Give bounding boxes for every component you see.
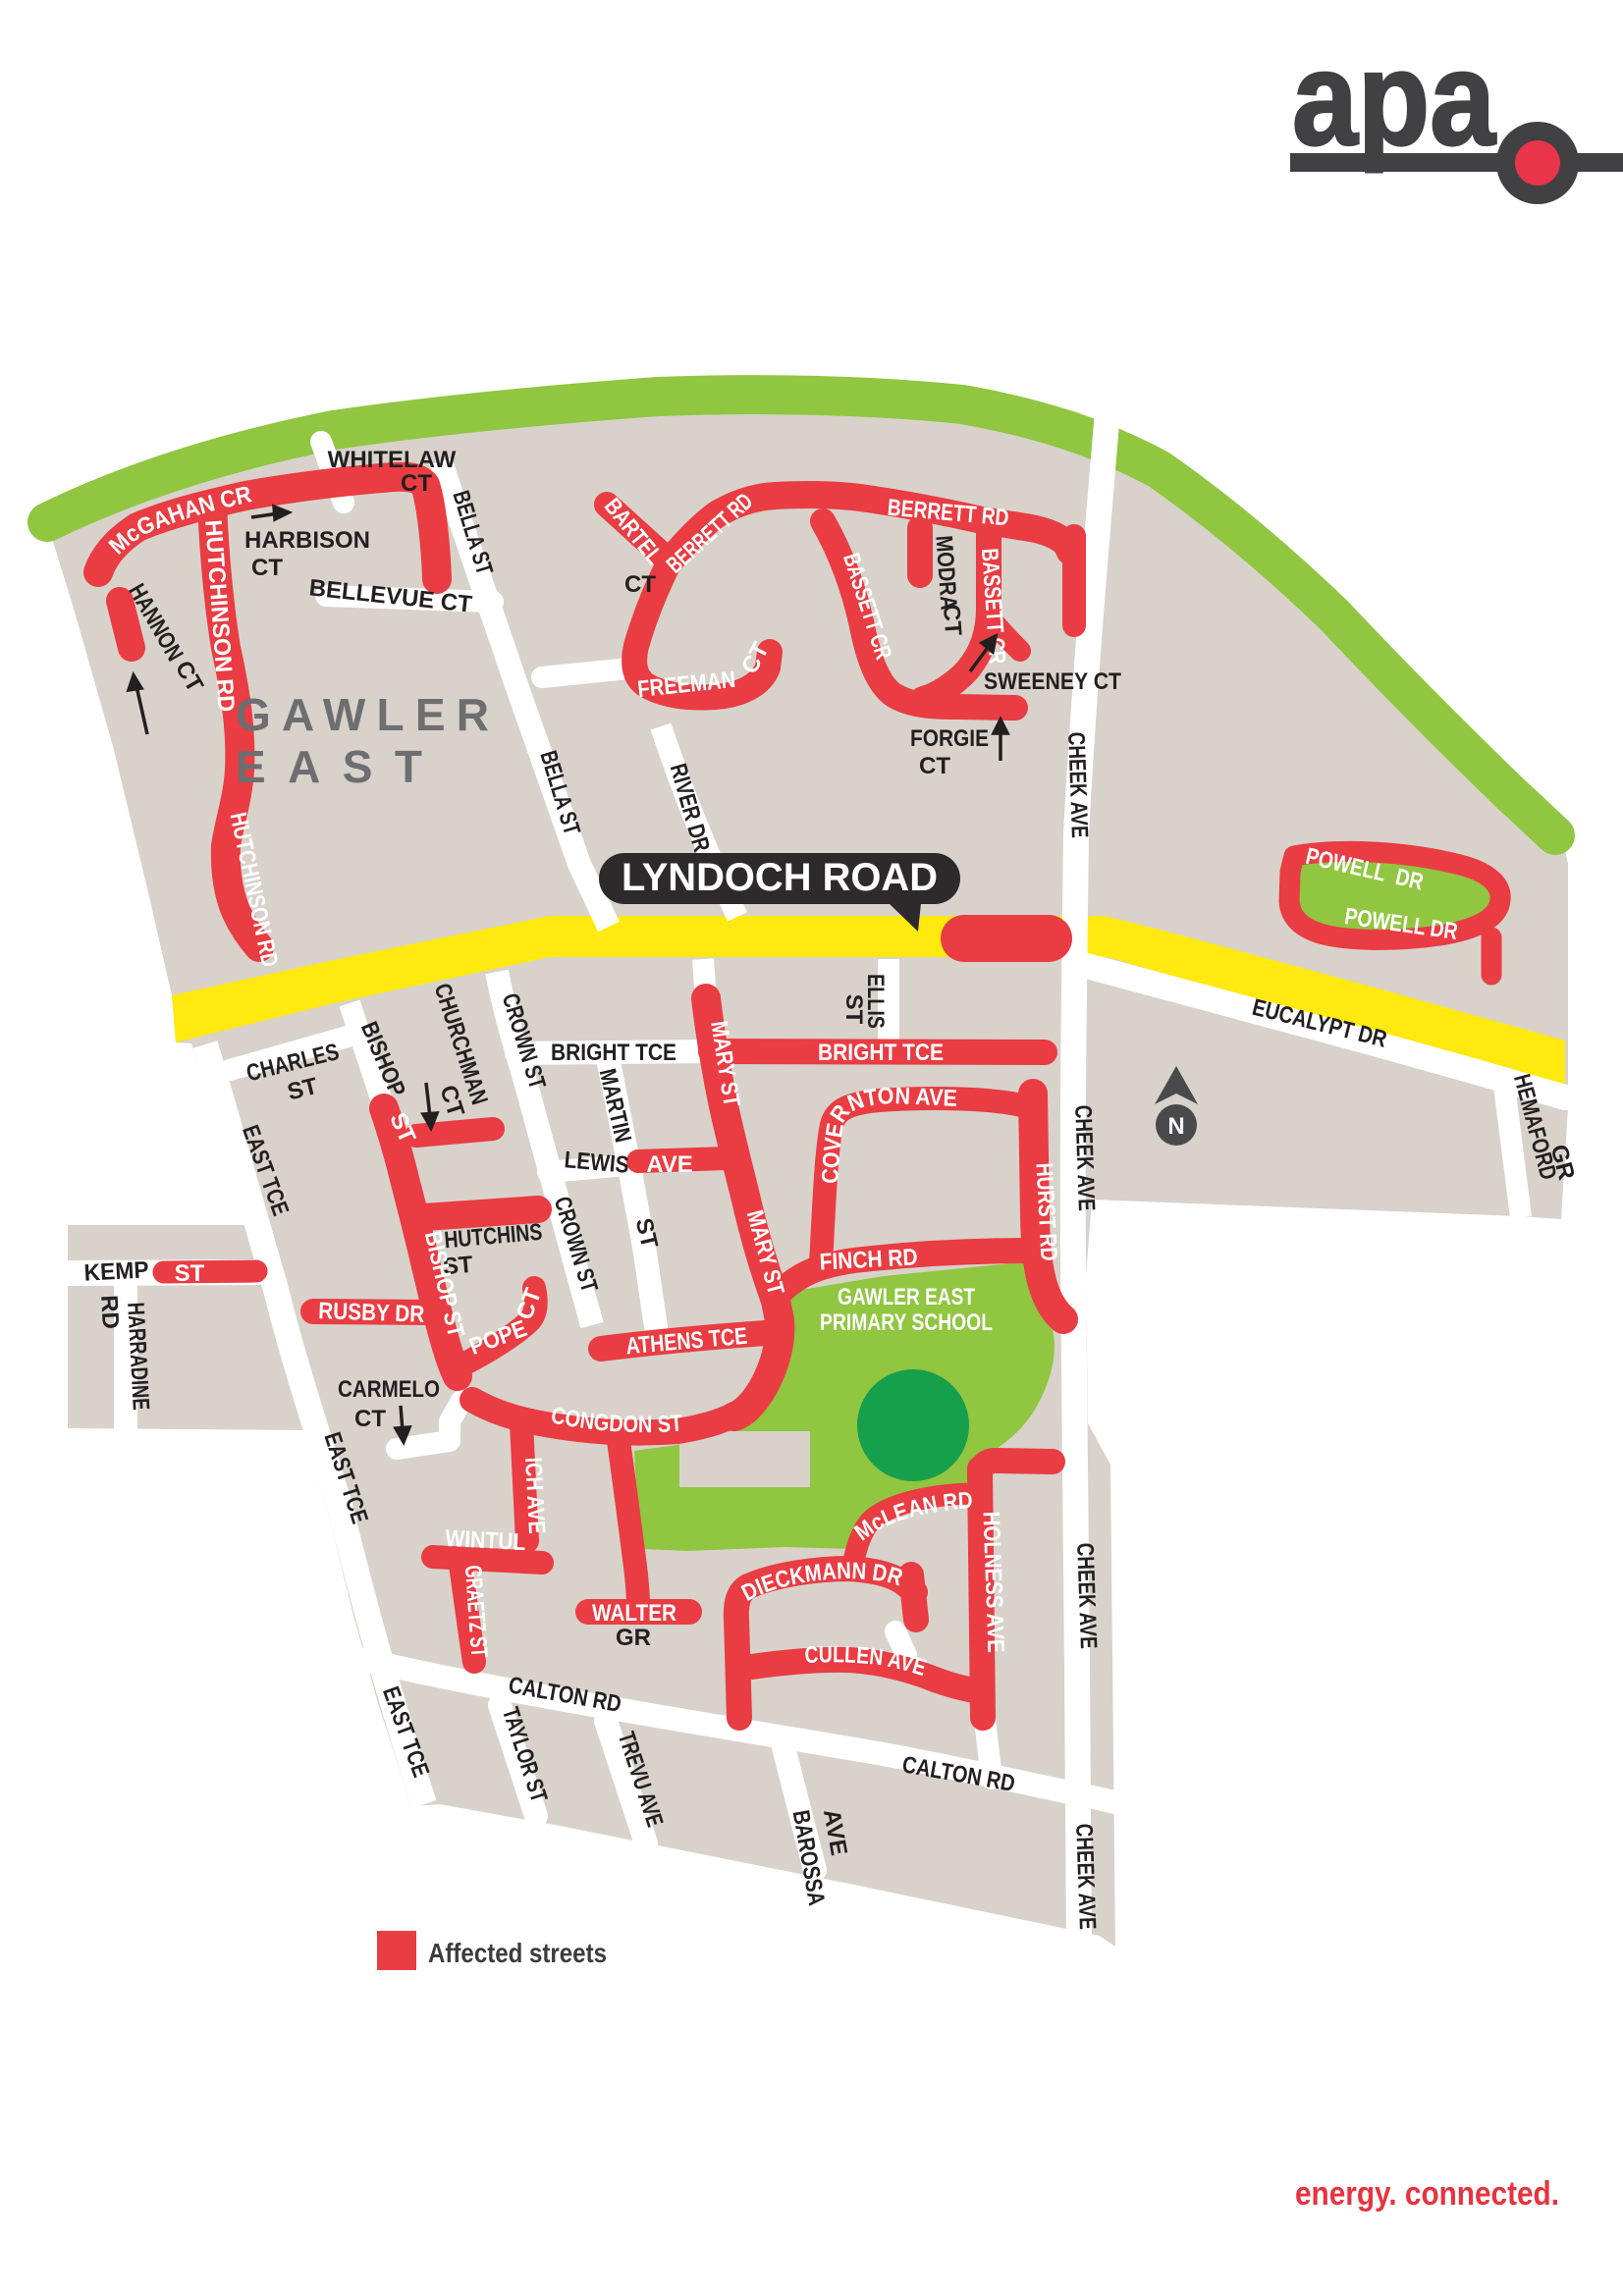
svg-text:HARBISON: HARBISON <box>244 527 370 554</box>
svg-text:CHEEK AVE: CHEEK AVE <box>1071 1542 1102 1649</box>
svg-text:CT: CT <box>938 604 966 637</box>
svg-text:energy. connected.: energy. connected. <box>1295 2175 1559 2213</box>
svg-text:GAWLER EAST: GAWLER EAST <box>838 1284 975 1310</box>
svg-text:apa: apa <box>1292 24 1496 173</box>
svg-text:RD: RD <box>95 1295 124 1330</box>
svg-text:WHITELAW: WHITELAW <box>328 447 457 473</box>
svg-text:ICH AVE: ICH AVE <box>519 1457 550 1534</box>
svg-text:MODRA: MODRA <box>930 535 961 612</box>
svg-text:CHEEK AVE: CHEEK AVE <box>1069 1104 1100 1211</box>
svg-text:CHEEK AVE: CHEEK AVE <box>1070 1823 1101 1930</box>
svg-text:CT: CT <box>919 753 950 779</box>
svg-text:GR: GR <box>616 1625 651 1651</box>
svg-text:PRIMARY SCHOOL: PRIMARY SCHOOL <box>820 1309 993 1336</box>
svg-text:KEMP: KEMP <box>83 1256 149 1286</box>
svg-text:WINTUL: WINTUL <box>445 1525 526 1556</box>
svg-text:HARRADINE: HARRADINE <box>122 1302 154 1411</box>
svg-text:ST: ST <box>175 1260 205 1287</box>
svg-text:FINCH RD: FINCH RD <box>819 1244 918 1275</box>
svg-text:BRIGHT TCE: BRIGHT TCE <box>818 1040 944 1066</box>
svg-text:LYNDOCH ROAD: LYNDOCH ROAD <box>622 856 938 899</box>
svg-text:WALTER: WALTER <box>592 1600 676 1627</box>
svg-text:RUSBY DR: RUSBY DR <box>318 1298 425 1328</box>
svg-text:LEWIS: LEWIS <box>564 1147 630 1179</box>
svg-text:Affected streets: Affected streets <box>428 1938 607 1968</box>
svg-text:SWEENEY CT: SWEENEY CT <box>984 668 1121 695</box>
svg-text:FORGIE: FORGIE <box>910 725 989 752</box>
svg-text:BRIGHT TCE: BRIGHT TCE <box>551 1040 676 1066</box>
svg-text:CT: CT <box>251 555 283 581</box>
svg-text:N: N <box>1167 1113 1184 1140</box>
svg-text:HOLNESS AVE: HOLNESS AVE <box>977 1511 1008 1653</box>
svg-text:CHEEK AVE: CHEEK AVE <box>1062 731 1093 838</box>
svg-text:HURST RD: HURST RD <box>1030 1162 1061 1261</box>
svg-text:ST: ST <box>840 994 867 1025</box>
svg-text:AVE: AVE <box>646 1151 693 1178</box>
svg-text:CARMELO: CARMELO <box>338 1376 440 1403</box>
svg-text:CT: CT <box>401 470 432 497</box>
svg-text:CT: CT <box>624 571 656 598</box>
svg-text:CT: CT <box>354 1406 386 1432</box>
